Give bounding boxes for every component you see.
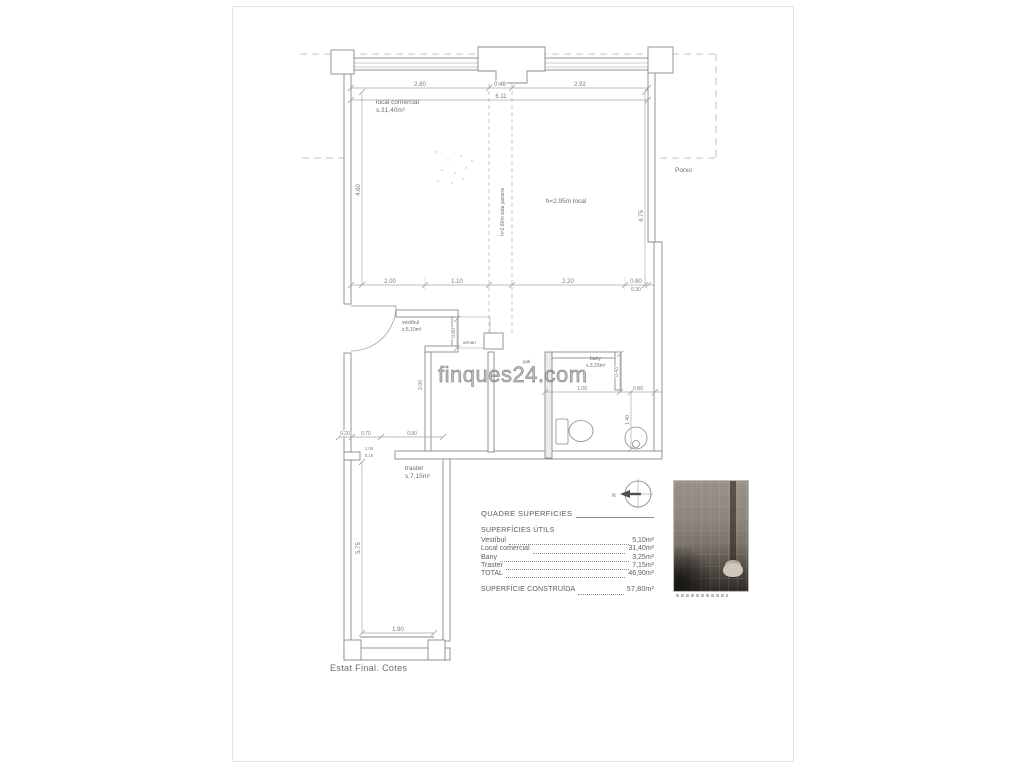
- entry-door: [351, 306, 396, 351]
- row-value: 46,90m²: [628, 570, 654, 578]
- row-value: 3,25m²: [632, 554, 654, 562]
- room-area-traster: s.7,15m²: [405, 473, 431, 480]
- room-label-bany: bany: [590, 356, 601, 362]
- dim-top-left: 2.80: [414, 82, 426, 88]
- table-row-total: TOTAL 46,90m²: [481, 570, 654, 578]
- dim-bany-v: 1.40: [625, 415, 631, 425]
- dotted-leader: [500, 556, 629, 562]
- dim-traster-width: 1.90: [392, 627, 404, 633]
- toilet-bowl-icon: [569, 421, 593, 442]
- table-row: Vestíbul 5,10m²: [481, 537, 654, 545]
- room-label-traster: traster: [405, 465, 424, 472]
- dim-jamb-1: 1.05: [365, 446, 374, 451]
- plan-footer-label: Estat Final. Cotes: [330, 663, 407, 673]
- dim-jamb-2: 0.16: [365, 453, 374, 458]
- annotation-height-local: h=2.95m local: [546, 198, 587, 205]
- table-row-constructed: SUPERFÍCIE CONSTRUÏDA 57,80m²: [481, 586, 654, 594]
- dim-left-height: 4.60: [356, 184, 362, 196]
- dotted-leader: [578, 589, 623, 595]
- dim-mid-3: 2.20: [562, 279, 574, 285]
- dim-closet-width: 0.80: [451, 328, 457, 338]
- row-value: 5,10m²: [632, 537, 654, 545]
- surface-table: QUADRE SUPERFICIES SUPERFÍCIES ÚTILS Ves…: [481, 509, 654, 595]
- door-arc: [351, 306, 396, 351]
- row-label: Vestíbul: [481, 537, 506, 545]
- room-label-vestibul: vestíbul: [402, 320, 419, 326]
- dim-top-total: 6.11: [495, 94, 507, 100]
- dim-vestibul-height: 2.00: [418, 380, 424, 390]
- dim-traster-1: 0.20: [340, 431, 350, 437]
- dim-traster-height: 5.75: [356, 542, 362, 554]
- scan-noise: [435, 151, 472, 183]
- north-arrow-icon: N: [612, 479, 653, 509]
- dotted-leader: [506, 572, 625, 578]
- title-rule: [576, 515, 654, 518]
- row-label: TOTAL: [481, 570, 503, 578]
- surface-table-section: SUPERFÍCIES ÚTILS: [481, 527, 654, 534]
- bathroom-fixtures: [556, 419, 647, 449]
- dim-traster-2: 0.70: [361, 431, 371, 437]
- scanned-floorplan-page: N: [0, 0, 1024, 768]
- dim-top-right: 2.92: [574, 82, 586, 88]
- photo-shadow: [673, 545, 713, 592]
- pillar-top-right: [648, 47, 673, 73]
- room-label-armari: armari: [463, 340, 476, 345]
- dotted-leader: [506, 564, 629, 570]
- dim-bany-right: 0.80: [633, 386, 643, 392]
- table-row: Local comercial 31,40m²: [481, 545, 654, 553]
- bathroom-photo-thumbnail: [673, 480, 749, 592]
- photo-toilet: [723, 563, 743, 577]
- row-value: 7,15m²: [632, 562, 654, 570]
- annotation-height-beam: h=2.60m sota jassera: [500, 188, 506, 236]
- room-area-local-comercial: s.31,40m²: [376, 107, 406, 114]
- watermark: finques24.com: [438, 362, 588, 388]
- room-area-vestibul: s.5,10m²: [402, 327, 422, 333]
- photo-caption: [676, 594, 728, 597]
- dotted-leader: [533, 548, 626, 554]
- dim-mid-1: 2.00: [384, 279, 396, 285]
- row-label: Traster: [481, 562, 503, 570]
- dim-mid-4: 0.80: [630, 279, 642, 285]
- table-row: Bany 3,25m²: [481, 554, 654, 562]
- dim-traster-3: 0.90: [407, 431, 417, 437]
- dim-right-step: 0.30: [631, 287, 641, 293]
- pillar-top-center: [478, 47, 545, 83]
- toilet-tank-icon: [556, 419, 568, 444]
- row-label: Local comercial: [481, 545, 530, 553]
- dim-mid-2: 1.10: [451, 279, 463, 285]
- dim-right-height: 4.75: [639, 210, 645, 222]
- dim-top-center: 0.46: [494, 82, 506, 88]
- pillar-top-left: [331, 50, 354, 74]
- row-label: SUPERFÍCIE CONSTRUÏDA: [481, 586, 575, 594]
- room-label-porxo: Porxo: [675, 167, 692, 174]
- row-value: 57,80m²: [627, 586, 654, 594]
- row-label: Bany: [481, 554, 497, 562]
- row-value: 31,40m²: [628, 545, 654, 553]
- room-label-local-comercial: local comercial: [376, 99, 420, 106]
- surface-table-title: QUADRE SUPERFICIES: [481, 509, 572, 518]
- north-label: N: [612, 493, 616, 499]
- dim-bany-v-small: 0.43: [614, 367, 620, 377]
- table-row: Traster 7,15m²: [481, 562, 654, 570]
- room-area-bany: s.3,25m²: [586, 363, 606, 369]
